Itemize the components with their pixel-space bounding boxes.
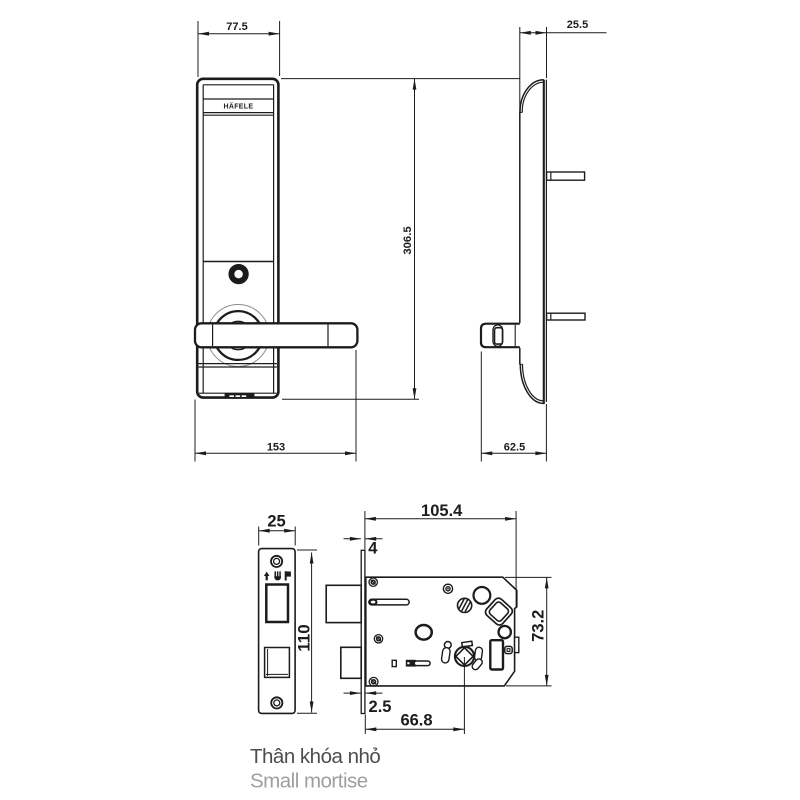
svg-text:62.5: 62.5 bbox=[504, 442, 525, 454]
svg-text:Thân khóa nhỏ: Thân khóa nhỏ bbox=[250, 745, 380, 768]
svg-text:HÄFELE: HÄFELE bbox=[223, 103, 253, 111]
svg-text:25: 25 bbox=[267, 513, 285, 531]
svg-text:73.2: 73.2 bbox=[530, 610, 548, 642]
svg-text:77.5: 77.5 bbox=[226, 21, 247, 33]
svg-text:25.5: 25.5 bbox=[567, 19, 588, 31]
svg-text:105.4: 105.4 bbox=[421, 502, 463, 520]
svg-text:2.5: 2.5 bbox=[369, 698, 392, 716]
svg-text:306.5: 306.5 bbox=[402, 226, 414, 254]
svg-text:153: 153 bbox=[267, 442, 285, 454]
svg-text:Small mortise: Small mortise bbox=[250, 770, 368, 793]
svg-text:110: 110 bbox=[294, 624, 313, 651]
svg-text:4: 4 bbox=[368, 540, 378, 558]
svg-text:66.8: 66.8 bbox=[400, 712, 432, 730]
